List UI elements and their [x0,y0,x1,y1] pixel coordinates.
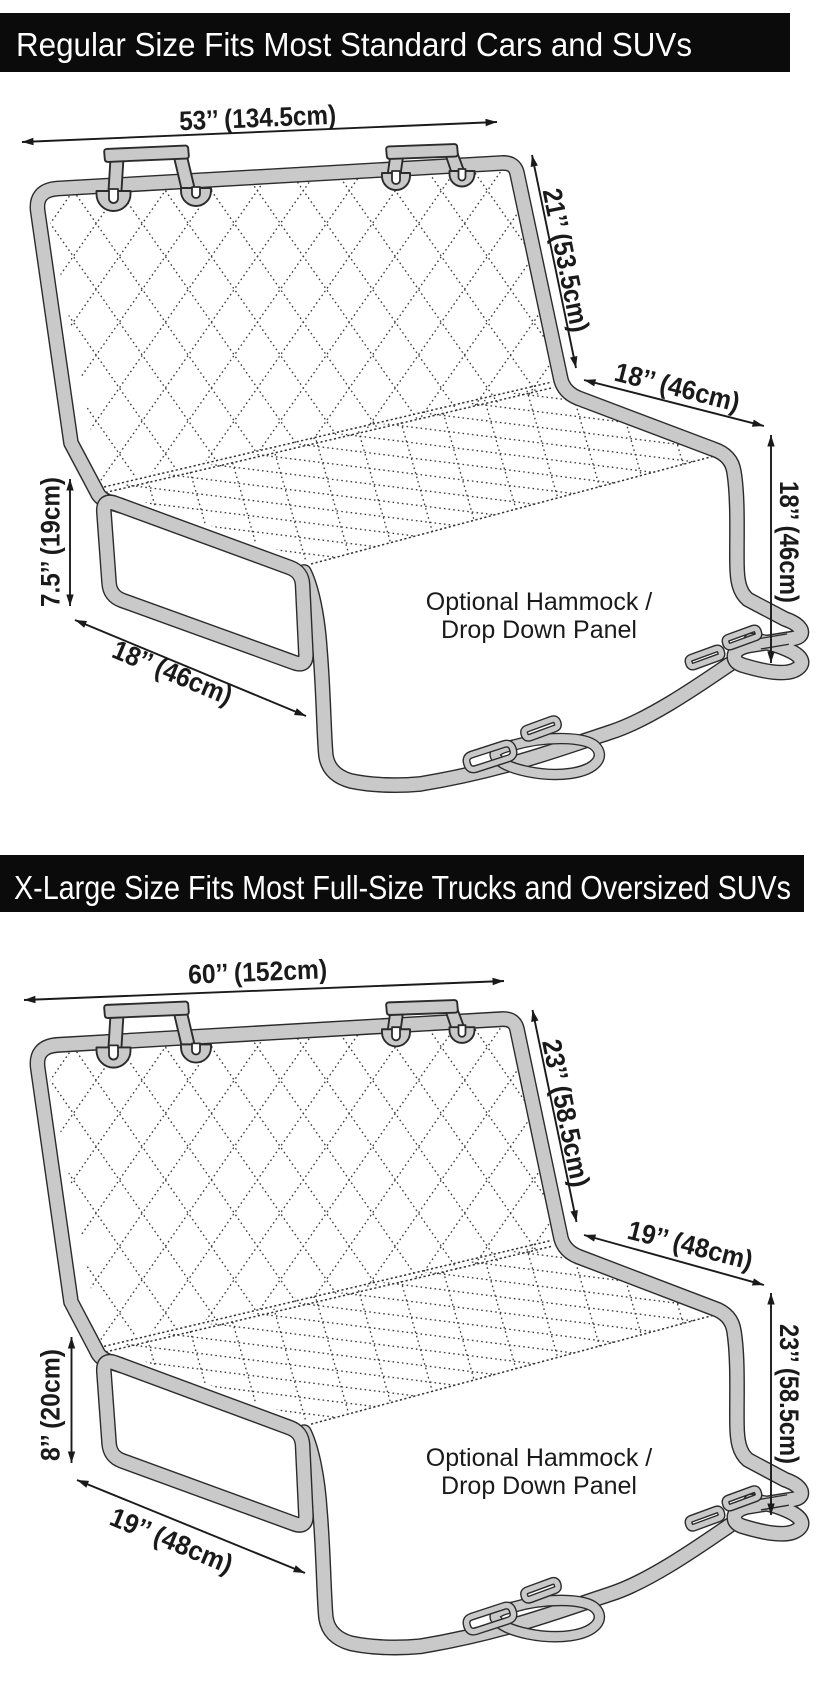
svg-text:Drop Down Panel: Drop Down Panel [441,616,637,644]
svg-text:X-Large Size Fits Most Full-Si: X-Large Size Fits Most Full-Size Trucks … [14,869,791,906]
svg-text:60’’ (152cm): 60’’ (152cm) [188,954,328,990]
svg-text:23’’ (58.5cm): 23’’ (58.5cm) [774,1324,804,1464]
svg-text:7.5’’ (19cm): 7.5’’ (19cm) [36,477,66,607]
svg-text:Optional Hammock /: Optional Hammock / [426,1444,653,1472]
svg-text:8’’ (20cm): 8’’ (20cm) [36,1349,66,1461]
svg-text:Regular Size Fits Most Standar: Regular Size Fits Most Standard Cars and… [16,26,692,63]
svg-text:18’’ (46cm): 18’’ (46cm) [774,481,804,603]
svg-text:Optional Hammock /: Optional Hammock / [426,588,653,616]
svg-text:Drop Down Panel: Drop Down Panel [441,1472,637,1500]
